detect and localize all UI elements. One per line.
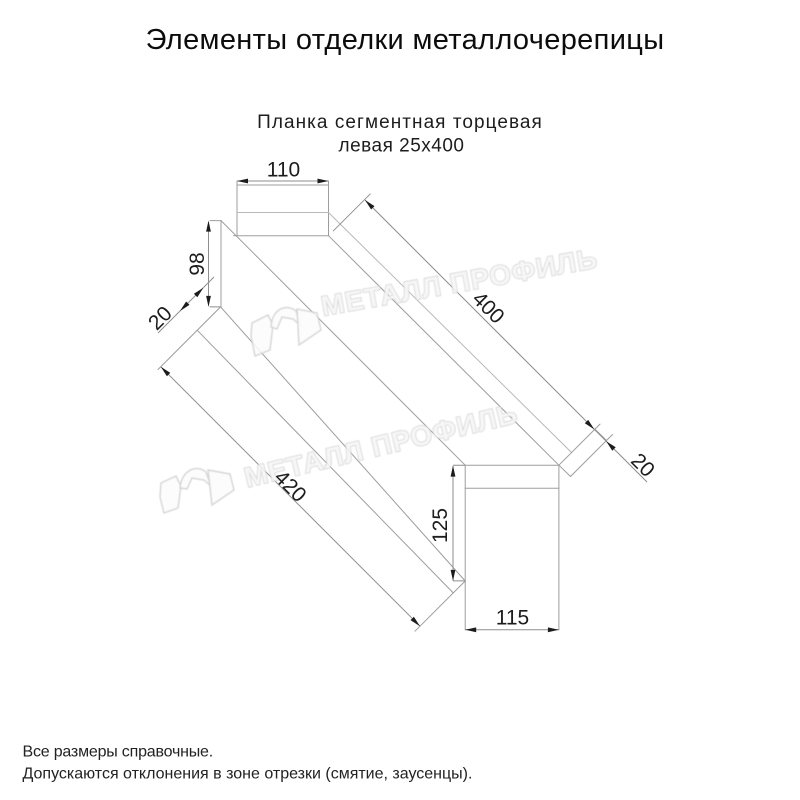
svg-text:МЕТАЛЛ ПРОФИЛЬ: МЕТАЛЛ ПРОФИЛЬ: [319, 243, 600, 322]
svg-text:Элементы отделки металлочерепи: Элементы отделки металлочерепицы: [146, 24, 665, 56]
svg-text:20: 20: [626, 449, 659, 482]
svg-text:Все размеры справочные.: Все размеры справочные.: [23, 744, 213, 761]
svg-text:115: 115: [496, 607, 529, 630]
svg-text:110: 110: [267, 159, 300, 182]
svg-text:20: 20: [144, 302, 177, 335]
svg-text:125: 125: [429, 508, 452, 543]
svg-text:левая 25х400: левая 25х400: [338, 136, 464, 157]
svg-text:Планка сегментная торцевая: Планка сегментная торцевая: [257, 112, 543, 133]
svg-text:98: 98: [186, 252, 209, 275]
svg-text:Допускаются отклонения в зоне: Допускаются отклонения в зоне отрезки (с…: [23, 766, 473, 783]
